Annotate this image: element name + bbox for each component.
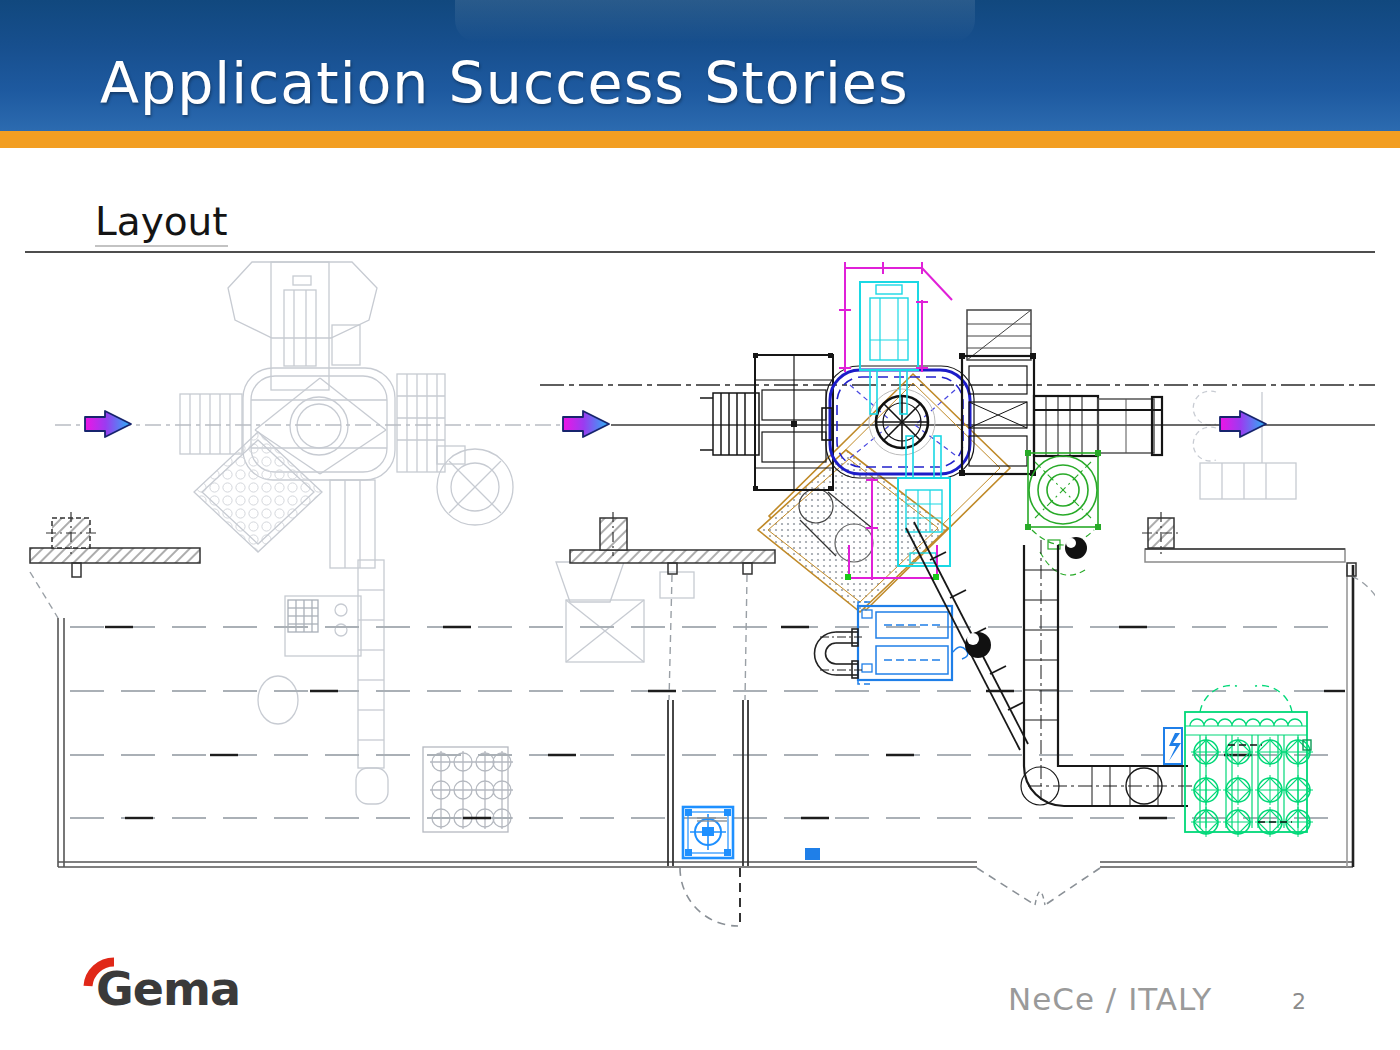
plant-layout-drawing	[25, 256, 1375, 940]
fan-scrolls	[965, 537, 1087, 658]
conveyor-loop	[822, 366, 974, 478]
door-position-marker	[683, 807, 733, 858]
afterfilter-unit	[1185, 686, 1313, 837]
page-number: 2	[1292, 989, 1306, 1014]
heading-divider	[25, 251, 1375, 253]
section-heading: Layout	[95, 199, 228, 244]
flow-arrow-middle	[563, 411, 609, 437]
entry-conveyor-stub	[700, 393, 759, 455]
accent-bar	[0, 131, 1400, 148]
gema-logo-text: Gema	[96, 962, 240, 1016]
section-heading-text: Layout	[95, 199, 228, 247]
flow-arrow-right	[1220, 411, 1266, 437]
return-pipe	[815, 629, 863, 678]
tan-platform	[758, 374, 1010, 612]
flow-arrow-left	[85, 411, 131, 437]
slide-title: Application Success Stories	[100, 50, 909, 116]
ghost-equipment-group	[180, 262, 1296, 832]
diagonal-conveyor	[906, 522, 1028, 750]
header-highlight	[455, 0, 975, 42]
electrical-marker-icon	[1164, 728, 1182, 764]
cyclone-unit	[1028, 453, 1098, 575]
gema-logo: Gema	[80, 956, 280, 1020]
footer-project-label: NeCe / ITALY	[1008, 981, 1212, 1017]
powder-booth-assembly	[700, 262, 1162, 750]
oven-assembly	[962, 310, 1162, 474]
extraction-duct	[1021, 540, 1195, 806]
pretreatment-unit-top	[860, 282, 918, 414]
small-blue-marker	[805, 848, 820, 860]
